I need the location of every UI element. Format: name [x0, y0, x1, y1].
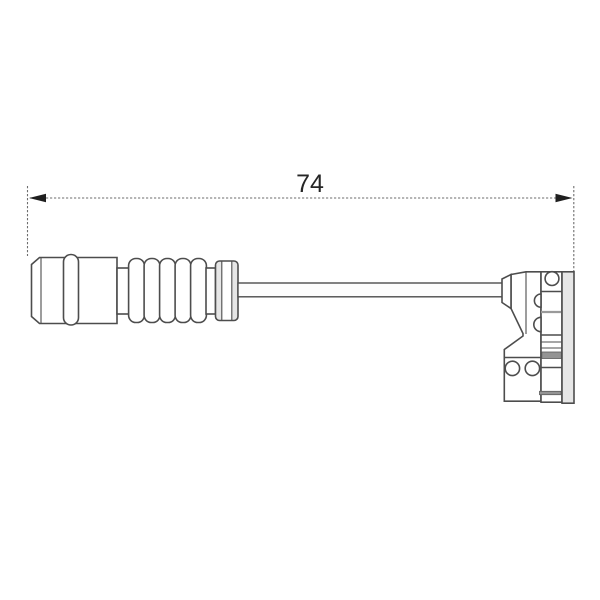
bellows-rib: [129, 259, 145, 323]
connector-ring: [64, 255, 79, 326]
dimension-arrow-right-icon: [556, 194, 573, 202]
bellows-neck-left: [117, 268, 129, 314]
end-cap-flange-left: [216, 262, 222, 321]
connector-plug: [32, 255, 118, 326]
bellows-rib: [144, 259, 160, 323]
cable-clamp: [502, 275, 511, 309]
bellows-neck-right: [206, 268, 216, 314]
mounting-hole: [505, 361, 519, 375]
column-tab: [534, 317, 541, 331]
end-cap-flange-right: [232, 262, 238, 321]
mounting-bracket: [502, 272, 574, 403]
column-tab: [534, 294, 541, 307]
brake-wear-sensor-drawing: 74: [0, 0, 600, 600]
column-serration-band: [542, 352, 562, 359]
bellows-rib: [160, 259, 176, 323]
drawing-canvas: 74: [0, 0, 600, 600]
mounting-hole: [525, 361, 539, 375]
dimension-value: 74: [296, 170, 324, 198]
bracket-plate: [562, 272, 574, 403]
strain-relief-bellows: [117, 259, 238, 323]
bellows-rib: [191, 259, 207, 323]
cable-line: [238, 283, 503, 297]
sensor-cable: [238, 283, 503, 297]
bracket-top-hole: [545, 272, 559, 286]
dimension-arrow-left-icon: [29, 194, 46, 202]
bellows-rib: [175, 259, 191, 323]
column-gray-bar: [540, 391, 562, 394]
